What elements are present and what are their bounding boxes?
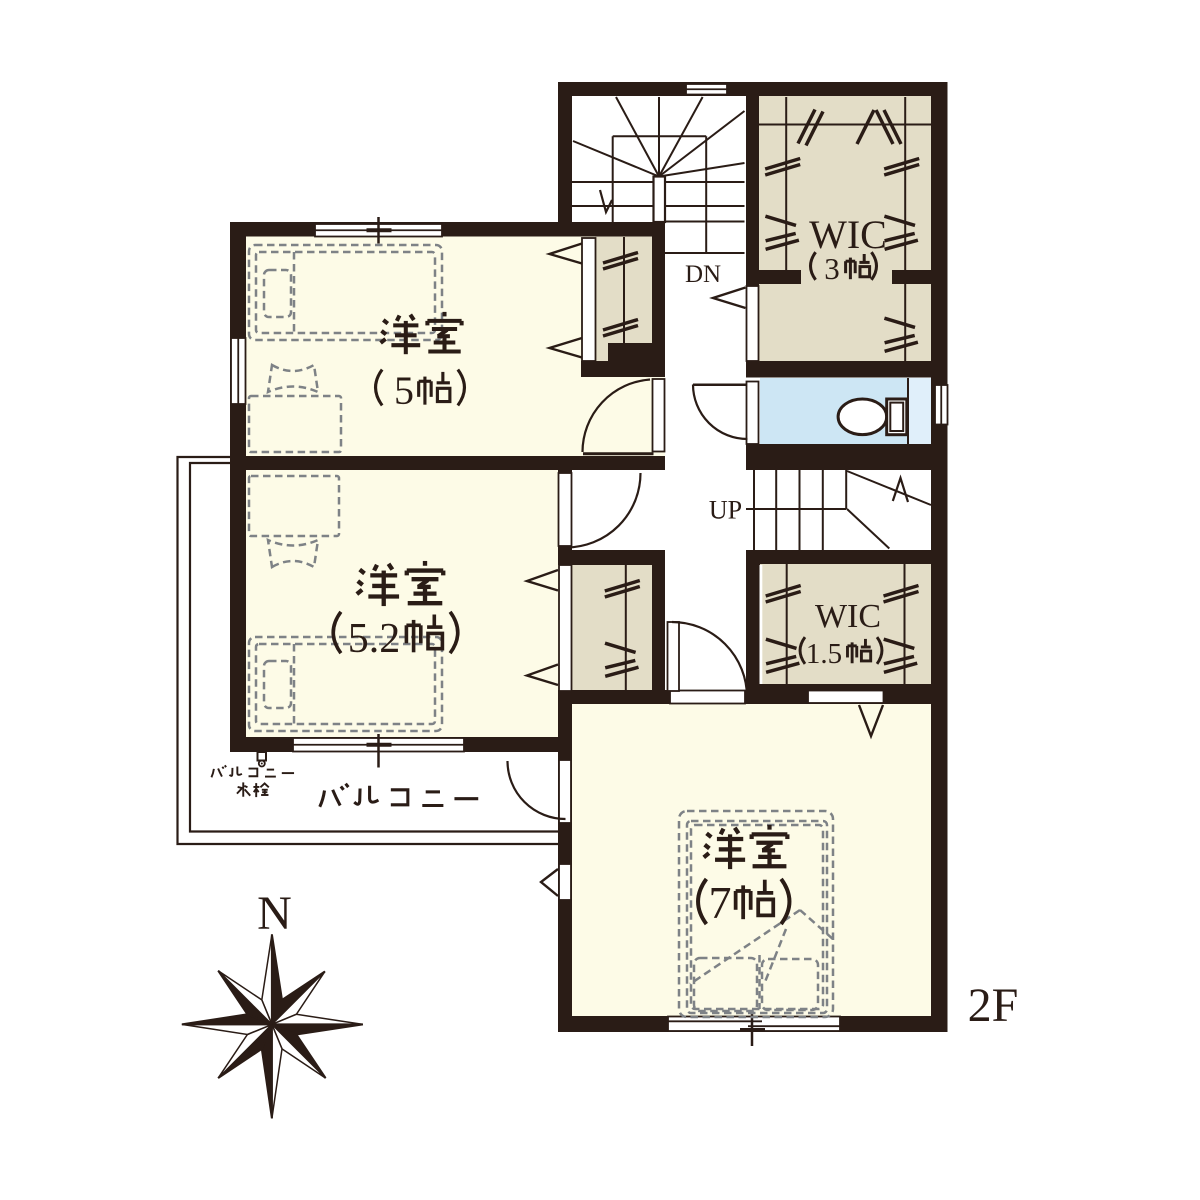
svg-text:DN: DN (685, 261, 721, 288)
svg-text:WIC: WIC (809, 212, 887, 257)
svg-text:1.5: 1.5 (806, 638, 842, 670)
svg-text:5: 5 (394, 368, 414, 413)
svg-text:N: N (257, 887, 292, 940)
svg-text:5.2: 5.2 (348, 616, 401, 662)
svg-text:2F: 2F (968, 979, 1019, 1032)
svg-text:7: 7 (709, 877, 732, 928)
svg-text:3: 3 (824, 251, 840, 286)
svg-text:UP: UP (709, 496, 742, 525)
svg-text:WIC: WIC (815, 598, 881, 635)
